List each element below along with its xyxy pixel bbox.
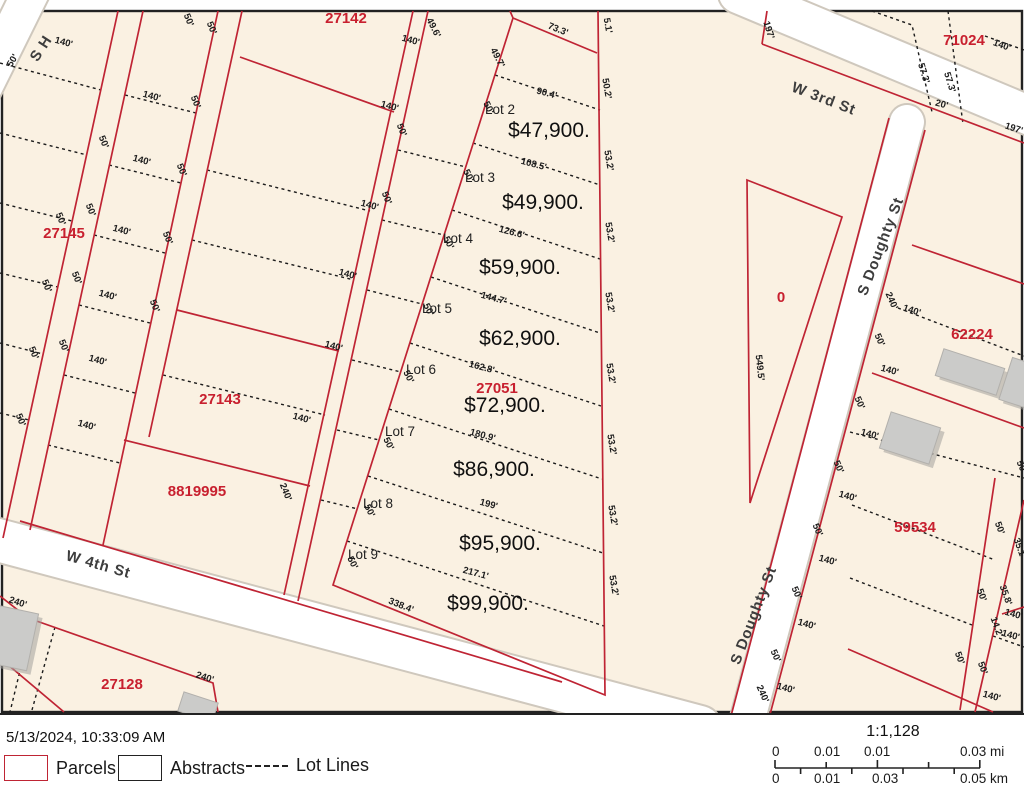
lot-4-price: $59,900. — [479, 256, 561, 279]
timestamp: 5/13/2024, 10:33:09 AM — [6, 729, 165, 746]
legend-item-parcels: Parcels — [4, 755, 116, 781]
parcel-id-27145: 27145 — [43, 225, 85, 242]
scale-km-labels: 0 0.01 0.03 0.05 km — [768, 771, 1018, 785]
parcel-id-27128: 27128 — [101, 676, 143, 693]
lot-9-price: $99,900. — [447, 592, 529, 615]
lot-8-price: $95,900. — [459, 532, 541, 555]
parcel-map-app: { "colors": { "map_background": "#faf1e2… — [0, 0, 1024, 791]
parcel-id-27142: 27142 — [325, 10, 367, 27]
scale-mi-tick: 0.01 — [864, 744, 890, 759]
lot-5-price: $62,900. — [479, 327, 561, 350]
legend-lot-lines-label: Lot Lines — [296, 755, 369, 776]
lot-3-price: $49,900. — [502, 191, 584, 214]
abstracts-swatch-icon — [118, 755, 162, 781]
legend-abstracts-label: Abstracts — [170, 758, 245, 779]
scale-km-tick: 0.03 — [872, 771, 898, 786]
legend-item-abstracts: Abstracts — [118, 755, 245, 781]
scale-km-tick: 0.05 km — [960, 771, 1008, 786]
scale-mi-tick: 0 — [772, 744, 780, 759]
scale-mi-labels: 0 0.01 0.01 0.03 mi — [768, 744, 1018, 758]
scale-mi-tick: 0.01 — [814, 744, 840, 759]
scale-bar: 1:1,128 0 0.01 0.01 0.03 mi 0 0.01 0.03 … — [768, 723, 1018, 789]
parcel-id-59534: 59534 — [894, 519, 936, 536]
scale-km-tick: 0 — [772, 771, 780, 786]
parcel-id-62224: 62224 — [951, 326, 993, 343]
parcel-id-71024: 71024 — [943, 32, 985, 49]
parcels-swatch-icon — [4, 755, 48, 781]
lot-lines-swatch-icon — [246, 765, 288, 767]
scale-ratio: 1:1,128 — [768, 723, 1018, 741]
scale-km-tick: 0.01 — [814, 771, 840, 786]
legend-parcels-label: Parcels — [56, 758, 116, 779]
lot-7-price: $86,900. — [453, 458, 535, 481]
map-viewport[interactable]: W 3rd StS Doughty StS Doughty StW 4th St… — [0, 0, 1024, 713]
lot-2-price: $47,900. — [508, 119, 590, 142]
parcel-id-27143: 27143 — [199, 391, 241, 408]
legend-item-lot-lines: Lot Lines — [246, 755, 369, 776]
map-footer: 5/13/2024, 10:33:09 AM Parcels Abstracts… — [0, 713, 1024, 791]
scale-mi-tick: 0.03 mi — [960, 744, 1004, 759]
lot-6-price: $72,900. — [464, 394, 546, 417]
parcel-id-0: 0 — [777, 289, 785, 306]
parcel-id-8819995: 8819995 — [168, 483, 226, 500]
